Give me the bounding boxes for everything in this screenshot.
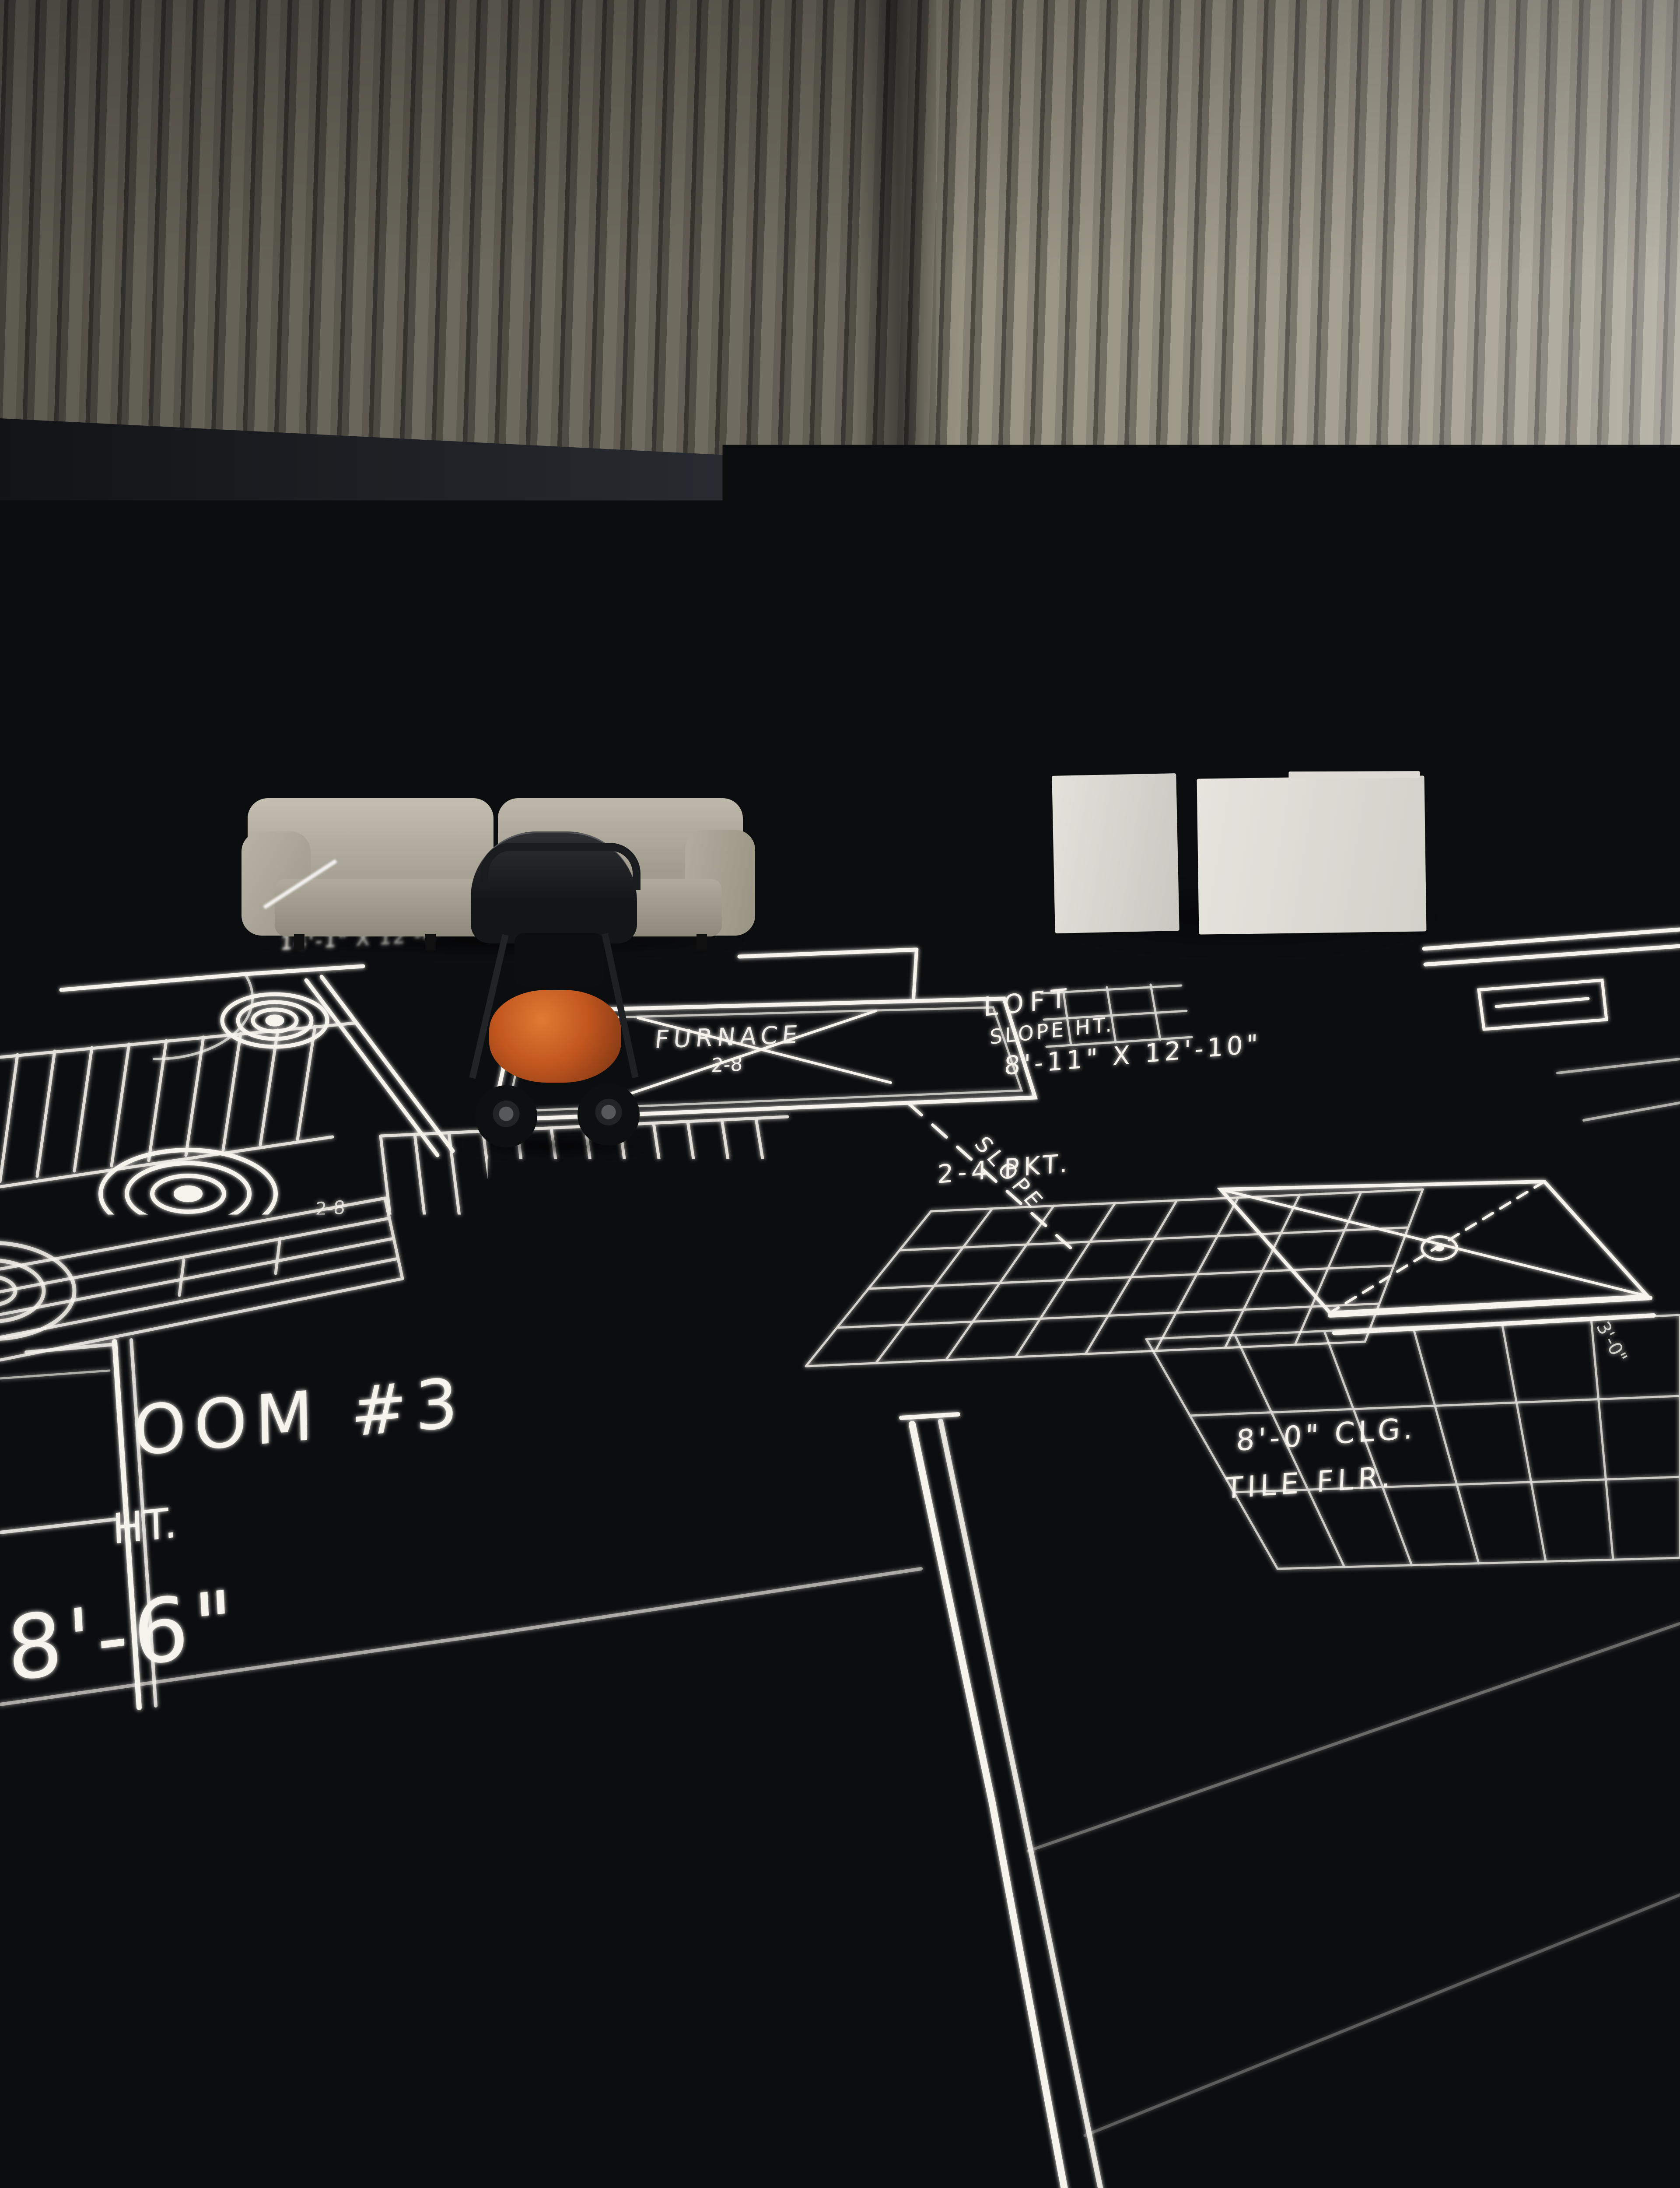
label-ceiling: 8'-0" CLG.: [1235, 1411, 1417, 1458]
woman-shoe: [919, 922, 945, 936]
label-loft: LOFT: [983, 982, 1072, 1023]
blueprint-projection: BEDROOM #2 14'-1" X 12'-4" FURNACE 2-8 2…: [0, 0, 1680, 2188]
label-room3: OOM #3: [132, 1363, 466, 1471]
blueprint-labels: BEDROOM #2 14'-1" X 12'-4" FURNACE 2-8 2…: [4, 900, 1631, 1701]
plan-wall: [913, 950, 917, 999]
fan-symbol: [715, 1247, 1000, 1435]
label-room3-height: 8'-6": [4, 1571, 241, 1701]
plan-wall-faint: [1085, 1895, 1680, 2135]
x-room: [1221, 1182, 1654, 1333]
man-cap-band: [980, 699, 1022, 706]
plan-wall-faint: [1028, 1623, 1680, 1851]
stroller-handle: [480, 843, 640, 890]
woman-leg: [917, 834, 944, 931]
plan-wall: [1424, 929, 1680, 964]
label-room3-ht: HT.: [112, 1499, 178, 1554]
label-2-8-b: 2-8: [315, 1196, 346, 1220]
closet-box: [1479, 980, 1606, 1029]
sofa-leg: [696, 934, 707, 950]
stroller-orange-bag: [489, 990, 621, 1083]
stroller-wheel: [475, 1085, 537, 1147]
label-3-0: 3'-0": [1592, 1318, 1631, 1367]
label-furnace: FURNACE: [654, 1020, 803, 1054]
leaning-panel: [1197, 775, 1427, 934]
label-tile-floor: TILE FLR.: [1224, 1460, 1395, 1505]
sofa-leg: [294, 934, 304, 950]
exhibition-hall-photo: BEDROOM #2 14'-1" X 12'-4" FURNACE 2-8 2…: [0, 0, 1680, 2188]
bright-wall-line: [901, 1414, 1111, 2188]
fan-symbol: [101, 1150, 276, 1238]
woman-leg: [892, 834, 917, 924]
sofa-leg: [425, 934, 436, 950]
stair-stringer: [306, 977, 453, 1155]
visitor-man: [962, 677, 1072, 944]
label-2-8-a: 2-8: [710, 1053, 743, 1077]
fan-symbol: [222, 994, 327, 1047]
label-pocket-door: 2-4 PKT.: [937, 1148, 1072, 1189]
stroller-seat: [514, 933, 604, 986]
woman-shoe: [889, 915, 914, 929]
panel-edge: [1288, 771, 1420, 778]
man-shoe: [1011, 925, 1041, 941]
stroller: [463, 823, 651, 1164]
stroller-wheel: [577, 1083, 640, 1146]
plan-fragment: [1557, 1059, 1680, 1120]
man-shoe: [969, 917, 997, 932]
visitor-woman: [873, 691, 973, 936]
